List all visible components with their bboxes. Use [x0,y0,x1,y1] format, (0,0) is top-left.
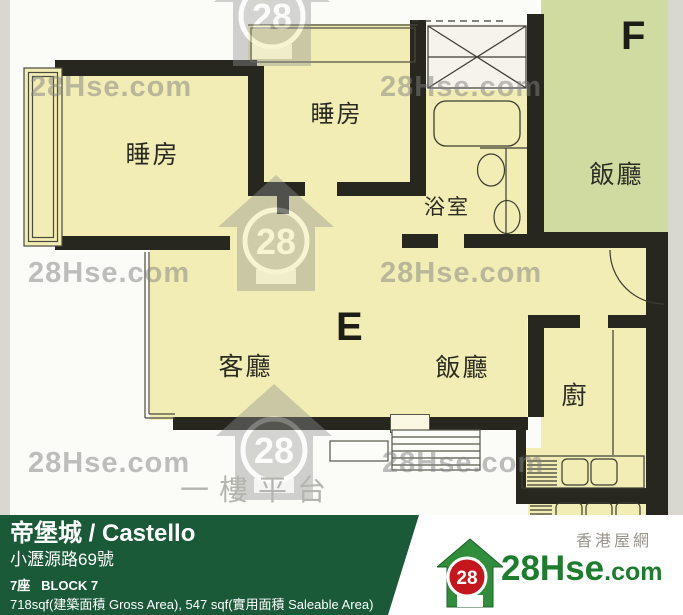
wall-segment [544,315,580,328]
watermark-text: 28Hse.com [382,449,544,478]
wall-segment [410,20,426,196]
room-kitchen [541,248,646,490]
label-bedroom-1: 睡房 [110,143,195,168]
wall-segment [248,66,264,188]
footer-bar: 帝堡城 / Castello 小瀝源路69號 7座 BLOCK 7 718sqf… [0,515,683,615]
watermark-badge: 28 [254,430,294,471]
wall-segment [428,417,528,430]
watermark-text: 28Hse.com [380,73,542,102]
window-gap-box [390,414,430,433]
wall-segment [55,236,230,250]
estate-area: 718sqf(建築面積 Gross Area), 547 sqf(實用面積 Sa… [10,594,373,613]
wall-segment [646,240,668,515]
room-bathroom [426,90,527,248]
watermark-text: 28Hse.com [28,449,190,478]
label-unit-f: F [621,16,645,56]
scan-edge-left [0,0,10,517]
brand-house-icon: 28 [437,537,503,609]
wall-segment [527,14,544,248]
watermark-text: 28Hse.com [380,259,542,288]
wall-segment [402,234,438,248]
wall-segment [277,194,289,214]
wall-segment [528,315,544,417]
watermark-text: 28Hse.com [28,259,190,288]
brand-site-name-cn: 香港屋網 [576,527,652,551]
scan-edge-right [668,0,683,517]
label-kitchen: 廚 [554,384,596,409]
label-living-room: 客廳 [203,355,288,380]
wall-segment [173,417,390,430]
brand-tld: .com [604,558,662,586]
label-unit-e: E [336,307,363,347]
label-dining-f: 飯廳 [574,163,659,188]
estate-address: 小瀝源路69號 [10,550,114,570]
label-bathroom: 浴室 [406,197,488,218]
floorplan-image: 28 28 28 睡房 睡房 浴室 E 客廳 飯廳 廚 F 飯廳 一樓平台 28… [0,0,683,615]
label-dining-e: 飯廳 [420,356,505,381]
wall-segment [516,488,646,504]
watermark-text: 28Hse.com [30,73,192,102]
brand-logo-text: 28Hse.com [501,551,663,586]
wall-segment [608,315,646,328]
estate-name: 帝堡城 / Castello [10,520,195,549]
wall-segment [464,234,527,248]
estate-block: 7座 BLOCK 7 [10,575,98,594]
brand-badge: 28 [456,568,477,589]
label-platform: 一樓平台 [180,477,430,506]
room-unit-f-dining [541,0,668,248]
brand-name: 28Hse [501,549,604,588]
footer-green-band: 帝堡城 / Castello 小瀝源路69號 7座 BLOCK 7 718sqf… [0,515,440,615]
label-bedroom-2: 睡房 [294,103,379,127]
